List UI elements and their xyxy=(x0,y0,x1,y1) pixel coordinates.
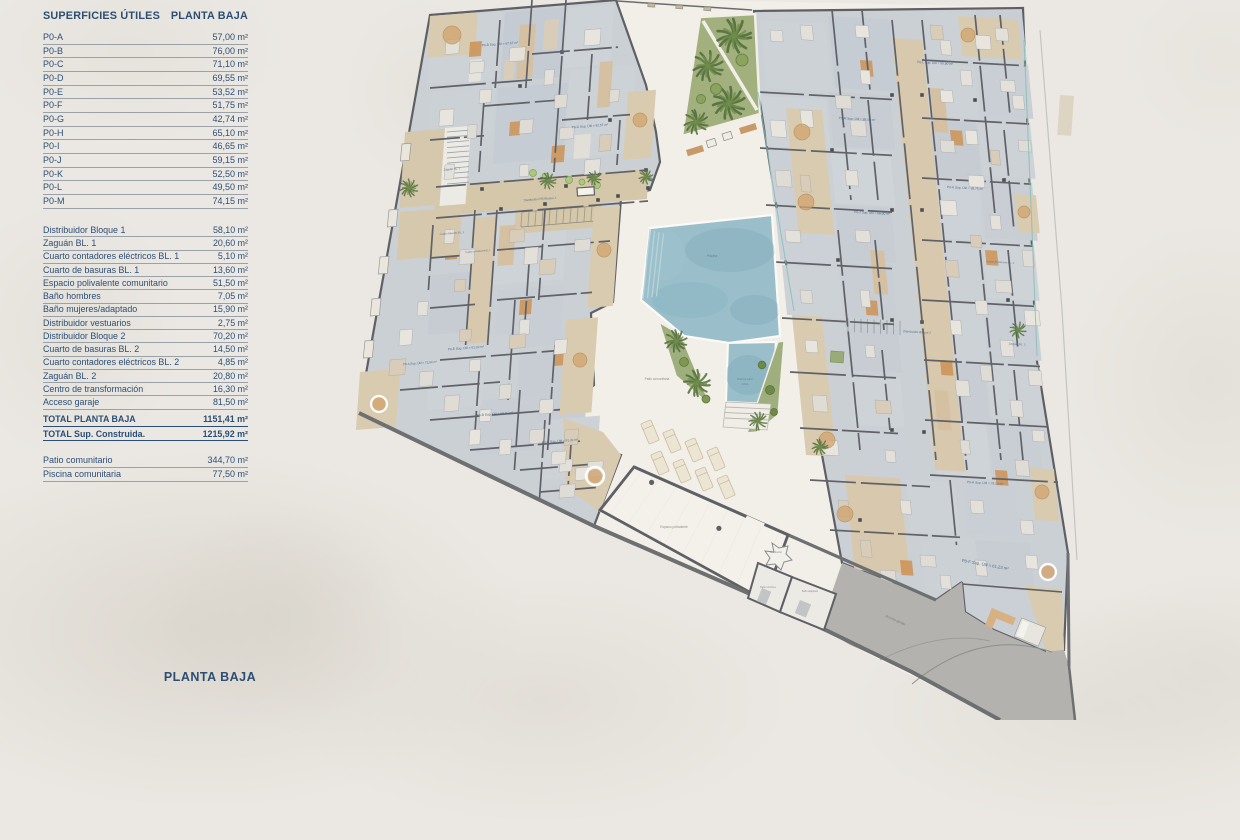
svg-text:Patio comunitaria: Patio comunitaria xyxy=(645,377,670,381)
svg-text:Baño hombres: Baño hombres xyxy=(760,586,776,589)
svg-text:Baño adaptado: Baño adaptado xyxy=(802,590,819,593)
svg-text:Espacio polivalente: Espacio polivalente xyxy=(660,525,688,529)
svg-text:Distribuidor: Distribuidor xyxy=(770,551,782,554)
svg-text:niños: niños xyxy=(742,382,749,386)
svg-text:Piscina: Piscina xyxy=(707,254,718,258)
svg-text:Piscina para: Piscina para xyxy=(737,377,753,381)
